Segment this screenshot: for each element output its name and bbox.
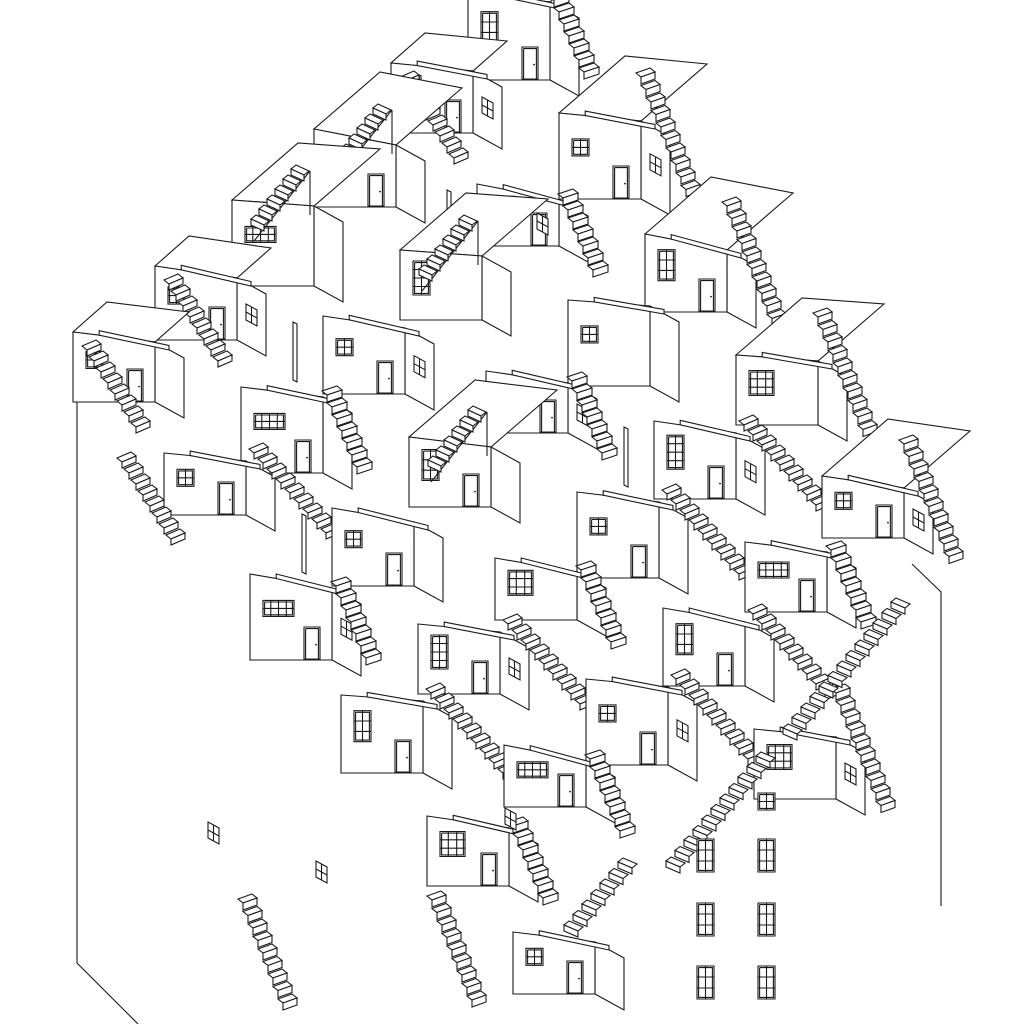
door bbox=[395, 740, 411, 772]
window bbox=[526, 948, 543, 965]
door-handle bbox=[533, 64, 535, 66]
window bbox=[758, 903, 775, 936]
door-frame bbox=[463, 474, 479, 506]
house bbox=[427, 815, 558, 905]
door-handle bbox=[406, 757, 408, 759]
window-frame bbox=[508, 570, 533, 595]
side-wall bbox=[396, 145, 425, 223]
house bbox=[513, 931, 624, 1010]
door-frame bbox=[699, 279, 715, 311]
door bbox=[377, 361, 393, 393]
door bbox=[558, 774, 574, 806]
pillar bbox=[624, 427, 628, 487]
door-handle bbox=[569, 791, 571, 793]
house bbox=[73, 302, 189, 433]
side-wall bbox=[745, 622, 774, 702]
door-handle bbox=[483, 678, 485, 680]
door-handle bbox=[138, 386, 140, 388]
door-frame bbox=[717, 653, 733, 685]
door-handle bbox=[551, 417, 553, 419]
door bbox=[567, 961, 583, 993]
door-handle bbox=[728, 670, 730, 672]
window bbox=[263, 600, 294, 616]
door-handle bbox=[220, 324, 222, 326]
house bbox=[559, 56, 707, 215]
window bbox=[254, 413, 285, 429]
window bbox=[676, 624, 693, 655]
side-wall bbox=[650, 306, 679, 402]
side-wall bbox=[818, 361, 847, 441]
window bbox=[758, 839, 775, 872]
door-handle bbox=[306, 457, 308, 459]
window-frame bbox=[749, 371, 774, 396]
window bbox=[599, 705, 616, 722]
door-handle bbox=[651, 749, 653, 751]
house bbox=[341, 683, 517, 789]
door-handle bbox=[456, 117, 458, 119]
door bbox=[708, 466, 724, 498]
door-frame bbox=[218, 482, 234, 514]
door-handle bbox=[315, 644, 317, 646]
window bbox=[697, 839, 714, 872]
door-frame bbox=[558, 774, 574, 806]
window bbox=[440, 832, 465, 857]
side-window bbox=[316, 861, 327, 883]
door-frame bbox=[876, 505, 892, 537]
door-frame bbox=[640, 732, 656, 764]
door bbox=[613, 166, 629, 198]
staircase bbox=[564, 858, 637, 937]
door-handle bbox=[624, 183, 626, 185]
door bbox=[218, 482, 234, 514]
door-handle bbox=[578, 978, 580, 980]
door-handle bbox=[642, 562, 644, 564]
window bbox=[581, 326, 598, 343]
door-frame bbox=[395, 740, 411, 772]
front-wall bbox=[736, 355, 818, 425]
door-frame bbox=[540, 400, 556, 432]
door bbox=[640, 732, 656, 764]
house bbox=[155, 236, 271, 367]
window bbox=[697, 966, 714, 999]
side-window bbox=[505, 808, 516, 830]
staircase bbox=[238, 894, 297, 1010]
silhouette-line bbox=[912, 564, 941, 906]
extra-staircases bbox=[117, 452, 910, 1010]
drawing-canvas bbox=[0, 0, 1024, 1024]
window bbox=[749, 371, 774, 396]
house bbox=[577, 484, 753, 594]
window bbox=[758, 562, 789, 578]
window bbox=[758, 966, 775, 999]
door-handle bbox=[492, 870, 494, 872]
window bbox=[697, 903, 714, 936]
door-handle bbox=[379, 191, 381, 193]
side-wall bbox=[155, 342, 184, 418]
window-frame bbox=[440, 832, 465, 857]
door bbox=[631, 545, 647, 577]
door bbox=[472, 661, 488, 693]
door-handle bbox=[388, 378, 390, 380]
side-wall bbox=[491, 447, 520, 523]
door-frame bbox=[377, 361, 393, 393]
window bbox=[658, 250, 675, 281]
window bbox=[517, 762, 548, 778]
door-frame bbox=[799, 579, 815, 611]
window bbox=[572, 139, 589, 156]
door bbox=[717, 653, 733, 685]
door-frame bbox=[472, 661, 488, 693]
door bbox=[799, 579, 815, 611]
door bbox=[522, 47, 538, 79]
door-handle bbox=[887, 522, 889, 524]
window bbox=[835, 492, 852, 509]
door bbox=[386, 553, 402, 585]
door-frame bbox=[522, 47, 538, 79]
side-wall bbox=[659, 502, 688, 594]
side-wall bbox=[482, 256, 511, 336]
door-frame bbox=[567, 961, 583, 993]
door bbox=[699, 279, 715, 311]
side-wall bbox=[414, 522, 443, 602]
window bbox=[508, 570, 533, 595]
front-wall bbox=[495, 558, 577, 620]
door bbox=[304, 627, 320, 659]
door-handle bbox=[719, 483, 721, 485]
house bbox=[624, 415, 830, 515]
pillar bbox=[293, 322, 297, 382]
door-frame bbox=[631, 545, 647, 577]
door-frame bbox=[708, 466, 724, 498]
door-handle bbox=[810, 596, 812, 598]
house bbox=[745, 541, 876, 629]
roof-face bbox=[736, 298, 884, 361]
window bbox=[336, 339, 353, 356]
door-handle bbox=[710, 296, 712, 298]
door-handle bbox=[397, 570, 399, 572]
window bbox=[758, 793, 775, 810]
house bbox=[250, 574, 381, 676]
staircase bbox=[427, 891, 486, 1007]
door-frame bbox=[295, 440, 311, 472]
window bbox=[667, 435, 684, 469]
silhouette-line bbox=[77, 345, 138, 1024]
side-wall bbox=[423, 701, 452, 789]
door bbox=[540, 400, 556, 432]
door bbox=[481, 853, 497, 885]
door-frame bbox=[386, 553, 402, 585]
house bbox=[822, 419, 970, 564]
door-frame bbox=[613, 166, 629, 198]
door bbox=[295, 440, 311, 472]
side-window bbox=[208, 822, 219, 844]
window bbox=[177, 469, 194, 486]
window bbox=[345, 531, 362, 548]
door-frame bbox=[304, 627, 320, 659]
door-frame bbox=[481, 853, 497, 885]
door-frame bbox=[368, 174, 384, 206]
door-handle bbox=[229, 499, 231, 501]
door bbox=[463, 474, 479, 506]
axonometric-village-drawing bbox=[0, 0, 1024, 1024]
door bbox=[876, 505, 892, 537]
side-wall bbox=[595, 942, 624, 1010]
window bbox=[481, 12, 498, 43]
door bbox=[368, 174, 384, 206]
door-handle bbox=[474, 491, 476, 493]
window bbox=[431, 635, 448, 669]
house bbox=[232, 143, 380, 302]
pillar bbox=[302, 514, 306, 574]
window bbox=[590, 518, 607, 535]
side-wall bbox=[314, 206, 343, 302]
window bbox=[354, 711, 371, 742]
